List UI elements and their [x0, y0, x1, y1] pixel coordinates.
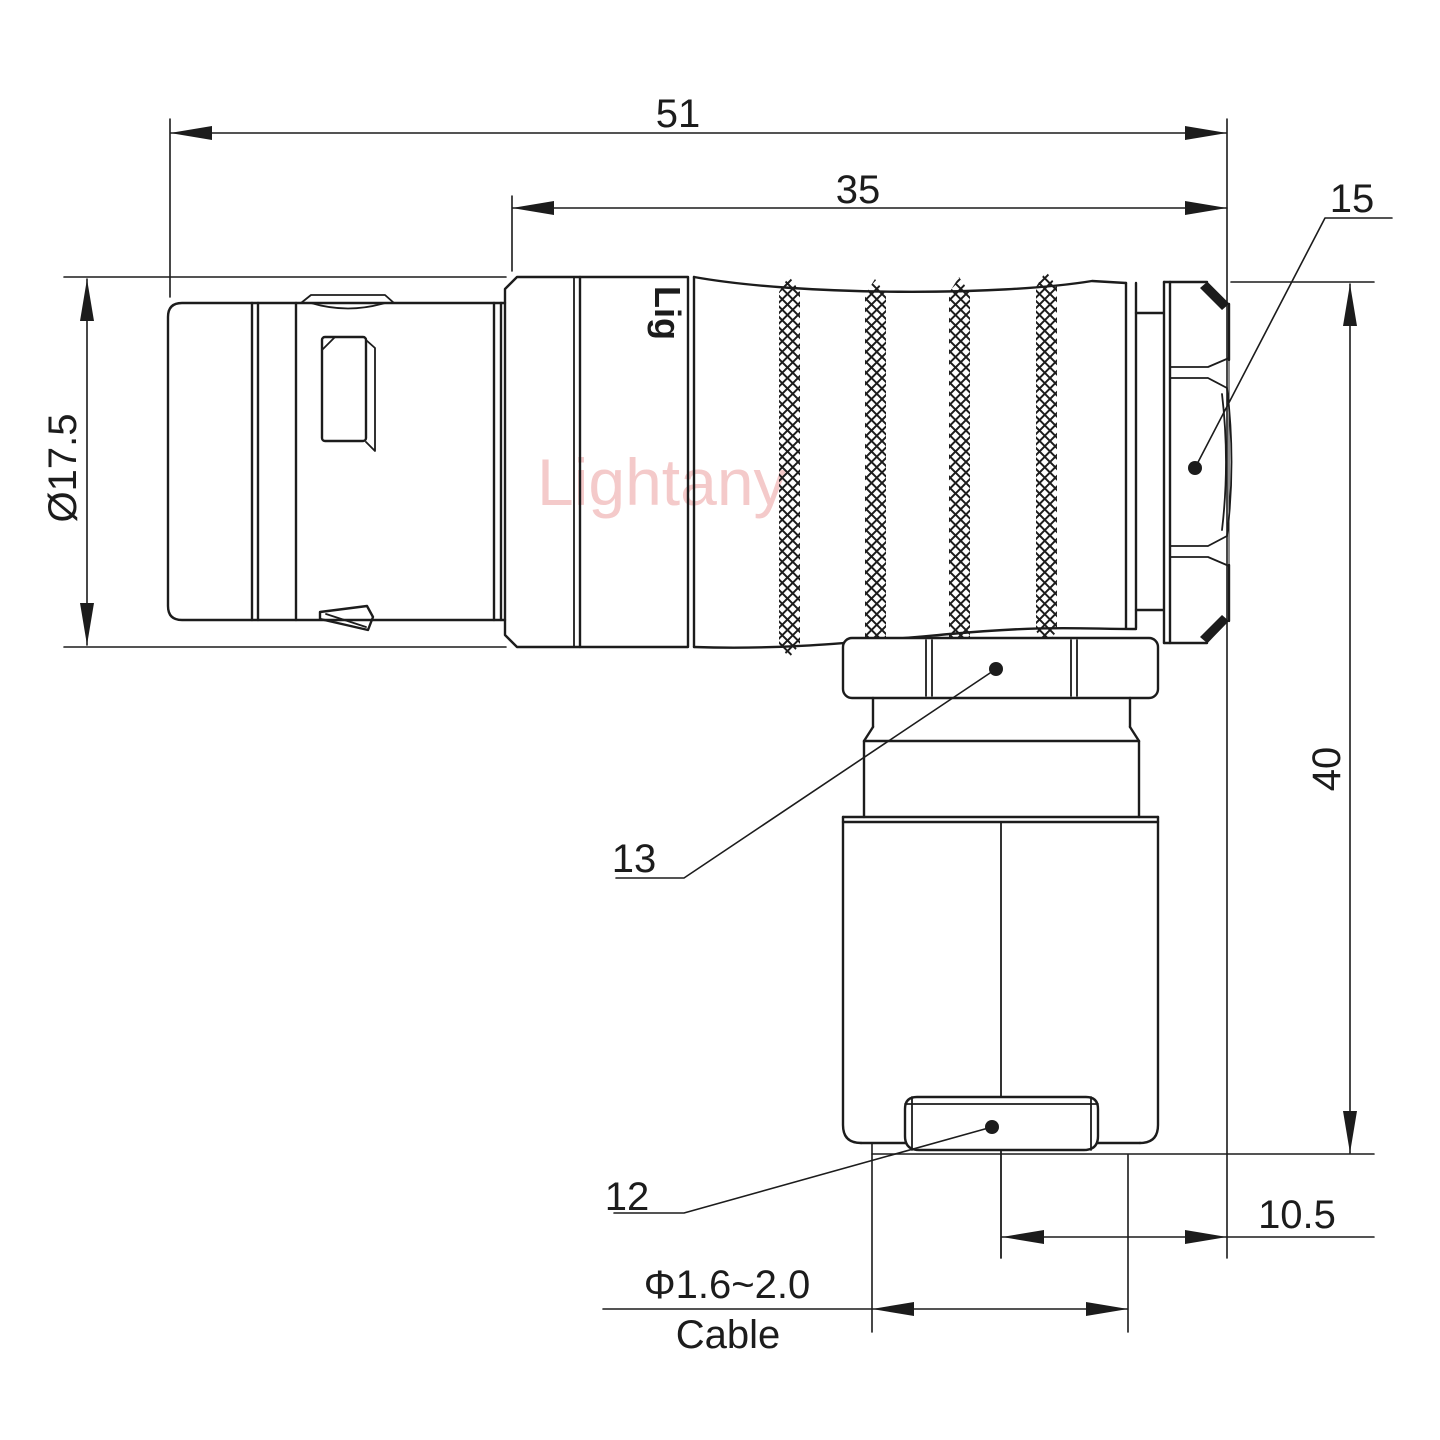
knurl-band: [949, 277, 970, 651]
arrowhead-bottom: [80, 603, 94, 645]
leader-dot: [1188, 461, 1202, 475]
dimension-35: 35: [512, 168, 1227, 271]
arrowhead-left: [512, 201, 554, 215]
cable-word: Cable: [676, 1313, 781, 1357]
knurl-band: [779, 276, 800, 658]
arrowhead-right: [1185, 1230, 1227, 1244]
dim-value: 51: [656, 92, 701, 136]
arrowhead-right: [1185, 126, 1227, 140]
connector-side-view: Lig: [168, 271, 1374, 1258]
dim-value: 40: [1305, 747, 1349, 792]
front-plug: [168, 295, 505, 630]
dim-line: [64, 277, 506, 647]
latch-window: [322, 337, 375, 451]
dimension-front-diameter: Ø17.5: [41, 277, 506, 647]
latch-ramp: [320, 606, 373, 630]
dimension-10-5: 10.5: [1002, 1193, 1374, 1244]
clamp-window: [905, 1097, 1098, 1150]
step-collar-edges: [1136, 313, 1164, 610]
arrowhead-left: [872, 1302, 914, 1316]
shell-right-face: [1126, 283, 1136, 628]
elbow-neck: [864, 698, 1139, 817]
callout-number: 15: [1330, 177, 1375, 221]
key-bump: [301, 295, 394, 309]
arrowhead-bottom: [1343, 1111, 1357, 1153]
knurl-band: [865, 279, 886, 656]
leader-dot: [989, 662, 1003, 676]
shell-step-collar: [1136, 313, 1164, 610]
cable-clamp-body: [843, 817, 1374, 1258]
technical-drawing: Lightany Lig: [0, 0, 1440, 1440]
body-marking-text: Lig: [647, 286, 688, 340]
arrowhead-left: [170, 126, 212, 140]
cable-diameter-value: Φ1.6~2.0: [644, 1263, 810, 1307]
latch-window-side: [366, 340, 375, 451]
clamp-window-outline: [905, 1097, 1098, 1150]
leader-line: [616, 669, 996, 878]
knurl-band: [1036, 271, 1057, 645]
neck-sides: [873, 698, 1130, 727]
latch-window-face: [322, 337, 366, 441]
knurl-top-edge: [694, 277, 1126, 292]
arrowhead-left: [1002, 1230, 1044, 1244]
latch-window-bevel: [322, 337, 335, 350]
dim-value: Ø17.5: [41, 414, 85, 523]
dimension-cable: Φ1.6~2.0 Cable: [603, 1143, 1128, 1357]
clamp-top-edges: [843, 817, 1158, 822]
arrowhead-right: [1185, 201, 1227, 215]
dim-value: 35: [836, 168, 881, 212]
leader-dot: [985, 1120, 999, 1134]
arrowhead-top: [80, 279, 94, 321]
upper-cylinder-sides: [864, 741, 1139, 817]
arrowhead-top: [1343, 284, 1357, 326]
plug-outline: [168, 303, 505, 620]
callout-number: 12: [605, 1175, 650, 1219]
callout-number: 13: [612, 837, 657, 881]
dim-value: 10.5: [1258, 1193, 1336, 1237]
dim-line: [1231, 282, 1374, 1153]
dimension-40: 40: [1231, 282, 1374, 1153]
plug-divider-lines: [252, 303, 501, 620]
arrowhead-right: [1086, 1302, 1128, 1316]
